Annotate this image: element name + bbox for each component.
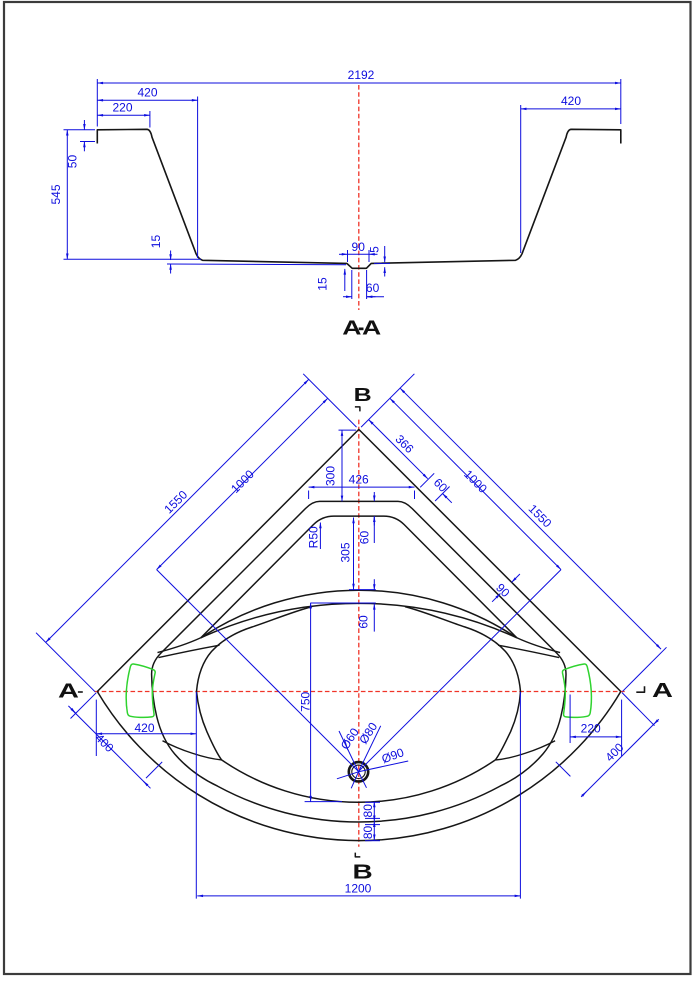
svg-text:A: A xyxy=(342,316,361,338)
svg-text:420: 420 xyxy=(561,94,581,108)
svg-text:60: 60 xyxy=(366,281,380,295)
svg-text:366: 366 xyxy=(392,432,416,456)
svg-text:15: 15 xyxy=(316,277,330,291)
svg-text:B: B xyxy=(354,384,372,405)
svg-text:60: 60 xyxy=(357,615,371,629)
svg-text:R50: R50 xyxy=(307,526,321,548)
svg-text:750: 750 xyxy=(299,691,313,711)
svg-text:Ø90: Ø90 xyxy=(380,745,406,766)
svg-text:50: 50 xyxy=(66,155,80,169)
svg-text:545: 545 xyxy=(49,184,63,204)
svg-text:60: 60 xyxy=(358,531,372,545)
svg-text:420: 420 xyxy=(137,86,157,100)
svg-text:60: 60 xyxy=(431,476,451,496)
svg-text:B: B xyxy=(352,861,372,883)
svg-text:426: 426 xyxy=(349,473,369,487)
svg-text:15: 15 xyxy=(149,235,163,249)
svg-text:A: A xyxy=(362,316,381,338)
svg-text:5: 5 xyxy=(368,246,382,253)
svg-text:1000: 1000 xyxy=(461,467,490,496)
svg-text:90: 90 xyxy=(352,240,366,254)
svg-text:400: 400 xyxy=(602,740,626,764)
svg-text:1200: 1200 xyxy=(345,882,372,896)
svg-text:1550: 1550 xyxy=(526,502,555,531)
svg-text:80: 80 xyxy=(361,804,375,818)
svg-text:420: 420 xyxy=(134,721,154,735)
svg-text:1000: 1000 xyxy=(228,467,257,496)
svg-text:220: 220 xyxy=(581,721,601,735)
svg-text:2192: 2192 xyxy=(348,68,375,82)
svg-text:80: 80 xyxy=(361,826,375,840)
svg-text:305: 305 xyxy=(339,542,353,562)
svg-text:A: A xyxy=(652,679,673,701)
svg-text:A: A xyxy=(58,680,79,702)
svg-text:220: 220 xyxy=(112,101,132,115)
svg-text:300: 300 xyxy=(324,466,338,486)
